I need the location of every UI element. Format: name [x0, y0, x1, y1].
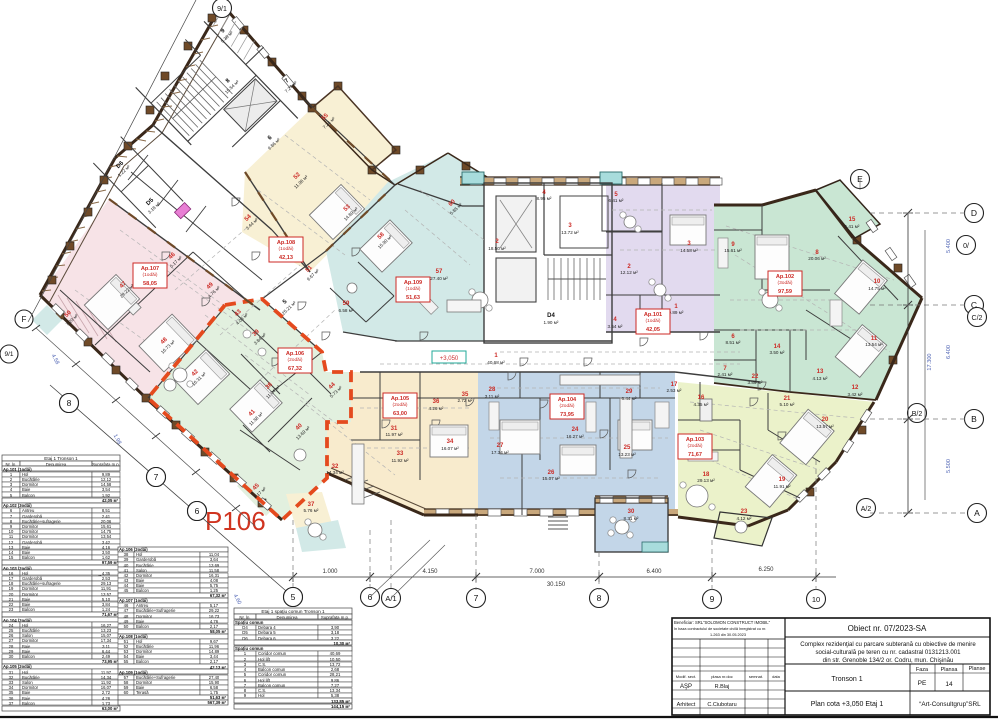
- svg-text:6.400: 6.400: [646, 569, 662, 575]
- svg-text:7: 7: [474, 593, 479, 603]
- svg-text:39: 39: [124, 557, 129, 562]
- svg-text:Balcon: Balcon: [136, 588, 149, 593]
- svg-text:10: 10: [874, 279, 881, 285]
- svg-text:58,05: 58,05: [143, 281, 157, 287]
- svg-text:55: 55: [124, 659, 129, 664]
- svg-text:Balcon: Balcon: [22, 701, 35, 706]
- svg-text:17.34 м²: 17.34 м²: [491, 450, 509, 455]
- svg-text:Plansa: Plansa: [941, 667, 959, 673]
- svg-text:3,18: 3,18: [331, 630, 340, 635]
- svg-text:(1odăi): (1odăi): [279, 246, 294, 252]
- svg-text:5: 5: [291, 592, 296, 602]
- svg-text:42,05 м²: 42,05 м²: [102, 498, 119, 503]
- svg-text:13,54: 13,54: [101, 534, 112, 539]
- svg-text:10: 10: [812, 595, 820, 604]
- svg-text:2.72 м²: 2.72 м²: [458, 398, 473, 403]
- svg-text:Beneficiar: SRL“SOLOMON CONSTR: Beneficiar: SRL“SOLOMON CONSTRUCT IMOBIL…: [674, 620, 771, 625]
- svg-text:(2odăi): (2odăi): [288, 357, 303, 363]
- svg-text:20.06 м²: 20.06 м²: [808, 256, 826, 261]
- svg-text:8,51: 8,51: [102, 508, 111, 513]
- svg-text:63,00: 63,00: [393, 411, 407, 417]
- svg-text:24: 24: [572, 427, 579, 433]
- svg-text:Arhitect: Arhitect: [677, 702, 696, 708]
- svg-text:42,13: 42,13: [279, 255, 293, 261]
- svg-text:(2odăi): (2odăi): [560, 403, 575, 409]
- svg-text:6.41 м²: 6.41 м²: [609, 198, 624, 203]
- svg-text:2.41 м²: 2.41 м²: [718, 372, 733, 377]
- svg-text:13.23 м²: 13.23 м²: [618, 452, 636, 457]
- svg-text:60: 60: [124, 690, 129, 695]
- svg-text:6.58 м²: 6.58 м²: [339, 308, 354, 313]
- svg-text:3.11 м²: 3.11 м²: [485, 394, 500, 399]
- svg-text:6.250: 6.250: [758, 567, 774, 573]
- svg-text:B/2: B/2: [912, 411, 923, 418]
- svg-text:16.27 м²: 16.27 м²: [566, 434, 584, 439]
- svg-text:58,05 м²: 58,05 м²: [210, 629, 227, 634]
- svg-text:40,69: 40,69: [330, 651, 341, 656]
- svg-text:45: 45: [124, 588, 129, 593]
- svg-text:F: F: [22, 315, 27, 324]
- svg-text:11.97 м²: 11.97 м²: [385, 432, 403, 437]
- svg-text:(2odăi): (2odăi): [393, 402, 408, 408]
- svg-text:+3,050: +3,050: [440, 356, 459, 362]
- svg-text:23: 23: [9, 607, 14, 612]
- svg-text:97,59 м²: 97,59 м²: [102, 560, 119, 565]
- svg-text:Baie: Baie: [22, 487, 31, 492]
- svg-text:36: 36: [433, 399, 440, 405]
- svg-text:29,22: 29,22: [209, 608, 220, 613]
- svg-text:(2odăi): (2odăi): [688, 443, 703, 449]
- svg-text:11.92 м²: 11.92 м²: [391, 458, 409, 463]
- svg-text:25: 25: [624, 445, 631, 451]
- svg-text:13: 13: [817, 369, 824, 375]
- svg-text:14: 14: [945, 681, 953, 688]
- svg-text:(1odăi): (1odăi): [406, 286, 421, 292]
- svg-text:97,59: 97,59: [778, 289, 792, 295]
- svg-text:(3odăi): (3odăi): [778, 280, 793, 286]
- svg-text:Terasă: Terasă: [136, 690, 149, 695]
- svg-text:67,32 м²: 67,32 м²: [210, 593, 227, 598]
- svg-text:Faza: Faza: [916, 667, 929, 673]
- svg-text:7.000: 7.000: [529, 569, 545, 575]
- svg-text:(1odăi): (1odăi): [646, 318, 661, 324]
- svg-text:3.54 м²: 3.54 м²: [608, 324, 623, 329]
- svg-text:6: 6: [195, 506, 200, 516]
- svg-text:9/1: 9/1: [4, 351, 13, 358]
- svg-text:5.500: 5.500: [946, 459, 952, 473]
- svg-text:37: 37: [9, 701, 14, 706]
- svg-text:3.42 м²: 3.42 м²: [848, 392, 863, 397]
- svg-text:D5: D5: [242, 630, 248, 635]
- svg-text:51,63: 51,63: [406, 295, 420, 301]
- svg-text:4.26 м²: 4.26 м²: [429, 406, 444, 411]
- svg-text:17,34: 17,34: [101, 638, 112, 643]
- svg-text:29: 29: [626, 389, 633, 395]
- svg-text:1-263 din 30.05.2023: 1-263 din 30.05.2023: [710, 633, 746, 637]
- svg-text:11.91 м²: 11.91 м²: [773, 484, 791, 489]
- svg-text:plasa nr.doc: plasa nr.doc: [711, 674, 733, 679]
- svg-text:A/1: A/1: [385, 594, 396, 603]
- svg-text:12.12 м²: 12.12 м²: [620, 270, 638, 275]
- svg-text:28: 28: [489, 387, 496, 393]
- svg-text:5,38: 5,38: [331, 693, 340, 698]
- svg-text:Balcon: Balcon: [136, 624, 149, 629]
- svg-text:Ap.108: Ap.108: [277, 240, 295, 246]
- svg-text:5.10 м²: 5.10 м²: [780, 402, 795, 407]
- svg-text:11: 11: [9, 534, 14, 539]
- svg-text:Garderobă: Garderobă: [136, 557, 157, 562]
- svg-text:Balcon: Balcon: [136, 659, 149, 664]
- svg-text:2,72: 2,72: [102, 690, 111, 695]
- svg-text:PE: PE: [918, 680, 927, 687]
- svg-text:4.35 м²: 4.35 м²: [694, 402, 709, 407]
- svg-text:Coridor comun: Coridor comun: [258, 651, 287, 656]
- svg-text:Baie: Baie: [22, 690, 31, 695]
- svg-text:data: data: [772, 674, 781, 679]
- svg-text:13.57 м²: 13.57 м²: [816, 424, 834, 429]
- svg-text:14.58 м²: 14.58 м²: [680, 248, 698, 253]
- svg-text:din str. Grenoble 134/2 or. Co: din str. Grenoble 134/2 or. Codru, mun. …: [823, 657, 954, 664]
- svg-text:D: D: [971, 208, 977, 218]
- svg-text:11,91: 11,91: [101, 586, 112, 591]
- svg-text:4.12 м²: 4.12 м²: [737, 516, 752, 521]
- svg-text:social-culturală pe teren cu n: social-culturală pe teren cu nr. cadastr…: [816, 649, 962, 656]
- svg-text:17.300: 17.300: [927, 353, 933, 370]
- svg-text:Ap.103: Ap.103: [686, 437, 704, 443]
- svg-text:567,39 м²: 567,39 м²: [208, 700, 227, 705]
- svg-text:(1odăi): (1odăi): [143, 272, 158, 278]
- svg-text:Obiect nr. 07/2023-SA: Obiect nr. 07/2023-SA: [848, 624, 927, 633]
- svg-text:Etaj 1 Tronson 1: Etaj 1 Tronson 1: [44, 456, 78, 461]
- svg-text:18.50 м²: 18.50 м²: [488, 246, 506, 251]
- svg-text:3,64: 3,64: [210, 557, 219, 562]
- svg-text:27: 27: [9, 638, 14, 643]
- svg-text:Antreu: Antreu: [22, 508, 35, 513]
- svg-text:în baza contractului de societ: în baza contractului de societate civilă…: [673, 627, 766, 631]
- svg-text:Denumirea: Denumirea: [276, 615, 298, 620]
- svg-text:15: 15: [849, 217, 856, 223]
- svg-text:34: 34: [447, 439, 454, 445]
- svg-text:C.Ciubotaru: C.Ciubotaru: [707, 702, 736, 708]
- svg-text:57: 57: [436, 269, 443, 275]
- svg-text:7: 7: [154, 472, 159, 482]
- svg-text:35: 35: [9, 690, 14, 695]
- svg-text:8.31 м²: 8.31 м²: [624, 516, 639, 521]
- svg-text:15.61 м²: 15.61 м²: [724, 248, 742, 253]
- svg-text:Balcon: Balcon: [22, 654, 35, 659]
- svg-text:13.72 м²: 13.72 м²: [561, 230, 579, 235]
- svg-text:“Art-Consultgrup”SRL: “Art-Consultgrup”SRL: [919, 701, 981, 708]
- svg-text:33: 33: [397, 451, 404, 457]
- svg-text:Ap.106: Ap.106: [286, 351, 304, 357]
- svg-text:Bucătărie+Sufragerie: Bucătărie+Sufragerie: [136, 608, 176, 613]
- svg-text:Plan cota +3,050 Etaj 1: Plan cota +3,050 Etaj 1: [811, 701, 884, 708]
- svg-text:Modif. sect.: Modif. sect.: [676, 674, 696, 679]
- svg-text:Planse: Planse: [969, 666, 986, 672]
- svg-text:59: 59: [343, 301, 350, 307]
- svg-text:42,05: 42,05: [646, 327, 660, 333]
- svg-text:2,17: 2,17: [210, 659, 219, 664]
- svg-text:D4: D4: [547, 313, 555, 319]
- svg-text:9/1: 9/1: [217, 6, 227, 13]
- svg-text:8.51 м²: 8.51 м²: [726, 340, 741, 345]
- svg-text:5.400: 5.400: [946, 239, 952, 253]
- svg-text:27.40 м²: 27.40 м²: [430, 276, 448, 281]
- svg-text:71,67: 71,67: [688, 452, 702, 458]
- svg-text:A: A: [974, 508, 980, 518]
- svg-text:9.89 м²: 9.89 м²: [669, 310, 684, 315]
- svg-text:73,95: 73,95: [560, 412, 574, 418]
- svg-text:Etaj 1 spaţiu comun Tronson 1: Etaj 1 spaţiu comun Tronson 1: [261, 609, 325, 614]
- svg-text:Ap.102: Ap.102: [776, 274, 794, 280]
- svg-text:4.150: 4.150: [422, 569, 438, 575]
- svg-text:semnat.: semnat.: [749, 674, 763, 679]
- svg-text:5.76 м²: 5.76 м²: [304, 508, 319, 513]
- svg-text:Ap.107: Ap.107: [141, 266, 159, 272]
- svg-text:Ap.105: Ap.105: [391, 396, 409, 402]
- svg-text:AŞP: AŞP: [680, 684, 692, 690]
- svg-text:Dormitor: Dormitor: [22, 638, 39, 643]
- svg-text:Coridor comun: Coridor comun: [258, 672, 287, 677]
- svg-text:73,95 м²: 73,95 м²: [102, 659, 119, 664]
- svg-text:0/: 0/: [963, 243, 969, 250]
- svg-text:20: 20: [822, 417, 829, 423]
- svg-text:Balcon: Balcon: [22, 493, 35, 498]
- svg-text:28,21: 28,21: [330, 672, 341, 677]
- svg-text:Tronson 1: Tronson 1: [831, 676, 862, 683]
- svg-text:27: 27: [497, 443, 504, 449]
- svg-text:23: 23: [741, 509, 748, 515]
- svg-text:30.150: 30.150: [547, 582, 566, 588]
- svg-text:3.86 м²: 3.86 м²: [748, 380, 763, 385]
- svg-text:14.75 м²: 14.75 м²: [868, 286, 886, 291]
- svg-text:Complex rezidenţial cu parcare: Complex rezidenţial cu parcare subterană…: [800, 641, 976, 648]
- svg-text:29.13 м²: 29.13 м²: [697, 478, 715, 483]
- svg-text:13.54 м²: 13.54 м²: [865, 342, 883, 347]
- svg-text:15.07 м²: 15.07 м²: [542, 476, 560, 481]
- svg-text:50: 50: [124, 624, 129, 629]
- svg-text:9: 9: [710, 594, 715, 604]
- svg-text:30: 30: [628, 509, 635, 515]
- svg-text:P106: P106: [205, 506, 266, 536]
- svg-text:1.90 м²: 1.90 м²: [544, 320, 559, 325]
- svg-text:47: 47: [124, 608, 129, 613]
- svg-text:Suprafata m.p.: Suprafata m.p.: [321, 615, 349, 620]
- svg-text:B: B: [971, 414, 977, 424]
- svg-text:8: 8: [67, 398, 72, 408]
- svg-text:R.Blaj: R.Blaj: [715, 684, 730, 690]
- svg-text:30: 30: [9, 654, 14, 659]
- svg-text:12: 12: [852, 385, 859, 391]
- svg-text:3.50 м²: 3.50 м²: [770, 350, 785, 355]
- svg-text:19: 19: [9, 586, 14, 591]
- svg-text:1.000: 1.000: [322, 569, 338, 575]
- svg-text:8.95 м²: 8.95 м²: [537, 196, 552, 201]
- svg-text:Dormitor: Dormitor: [22, 534, 39, 539]
- svg-text:5.41 м²: 5.41 м²: [845, 224, 860, 229]
- svg-text:16: 16: [698, 395, 705, 401]
- svg-text:Ap.109: Ap.109: [404, 280, 422, 286]
- svg-text:Balcon: Balcon: [22, 555, 35, 560]
- svg-text:67,32: 67,32: [288, 366, 302, 372]
- svg-text:Ap.105 (2odăi): Ap.105 (2odăi): [3, 664, 32, 669]
- svg-text:A/2: A/2: [861, 506, 872, 513]
- svg-text:14.34 м²: 14.34 м²: [326, 470, 344, 475]
- svg-text:144,15 м²: 144,15 м²: [331, 704, 351, 709]
- svg-text:63,00 м²: 63,00 м²: [102, 706, 119, 711]
- svg-text:Balcon: Balcon: [22, 607, 35, 612]
- svg-text:Hol: Hol: [258, 693, 264, 698]
- svg-text:Ap.101: Ap.101: [644, 312, 662, 318]
- svg-text:10,30 м²: 10,30 м²: [333, 641, 350, 646]
- svg-text:6.44 м²: 6.44 м²: [622, 396, 637, 401]
- svg-text:4.13 м²: 4.13 м²: [813, 376, 828, 381]
- svg-text:Dormitor: Dormitor: [22, 586, 39, 591]
- svg-text:6.400: 6.400: [946, 345, 952, 359]
- svg-text:2.53 м²: 2.53 м²: [667, 388, 682, 393]
- svg-text:C/2: C/2: [972, 315, 983, 322]
- svg-text:19: 19: [779, 477, 786, 483]
- svg-text:Ap.104: Ap.104: [558, 397, 577, 403]
- svg-text:40.68 м²: 40.68 м²: [487, 360, 505, 365]
- svg-text:71,67 м²: 71,67 м²: [102, 612, 119, 617]
- svg-text:Debara 5: Debara 5: [258, 630, 276, 635]
- svg-text:15: 15: [9, 555, 14, 560]
- svg-text:8: 8: [597, 593, 602, 603]
- svg-text:3,54: 3,54: [102, 487, 111, 492]
- svg-text:16.07 м²: 16.07 м²: [441, 446, 459, 451]
